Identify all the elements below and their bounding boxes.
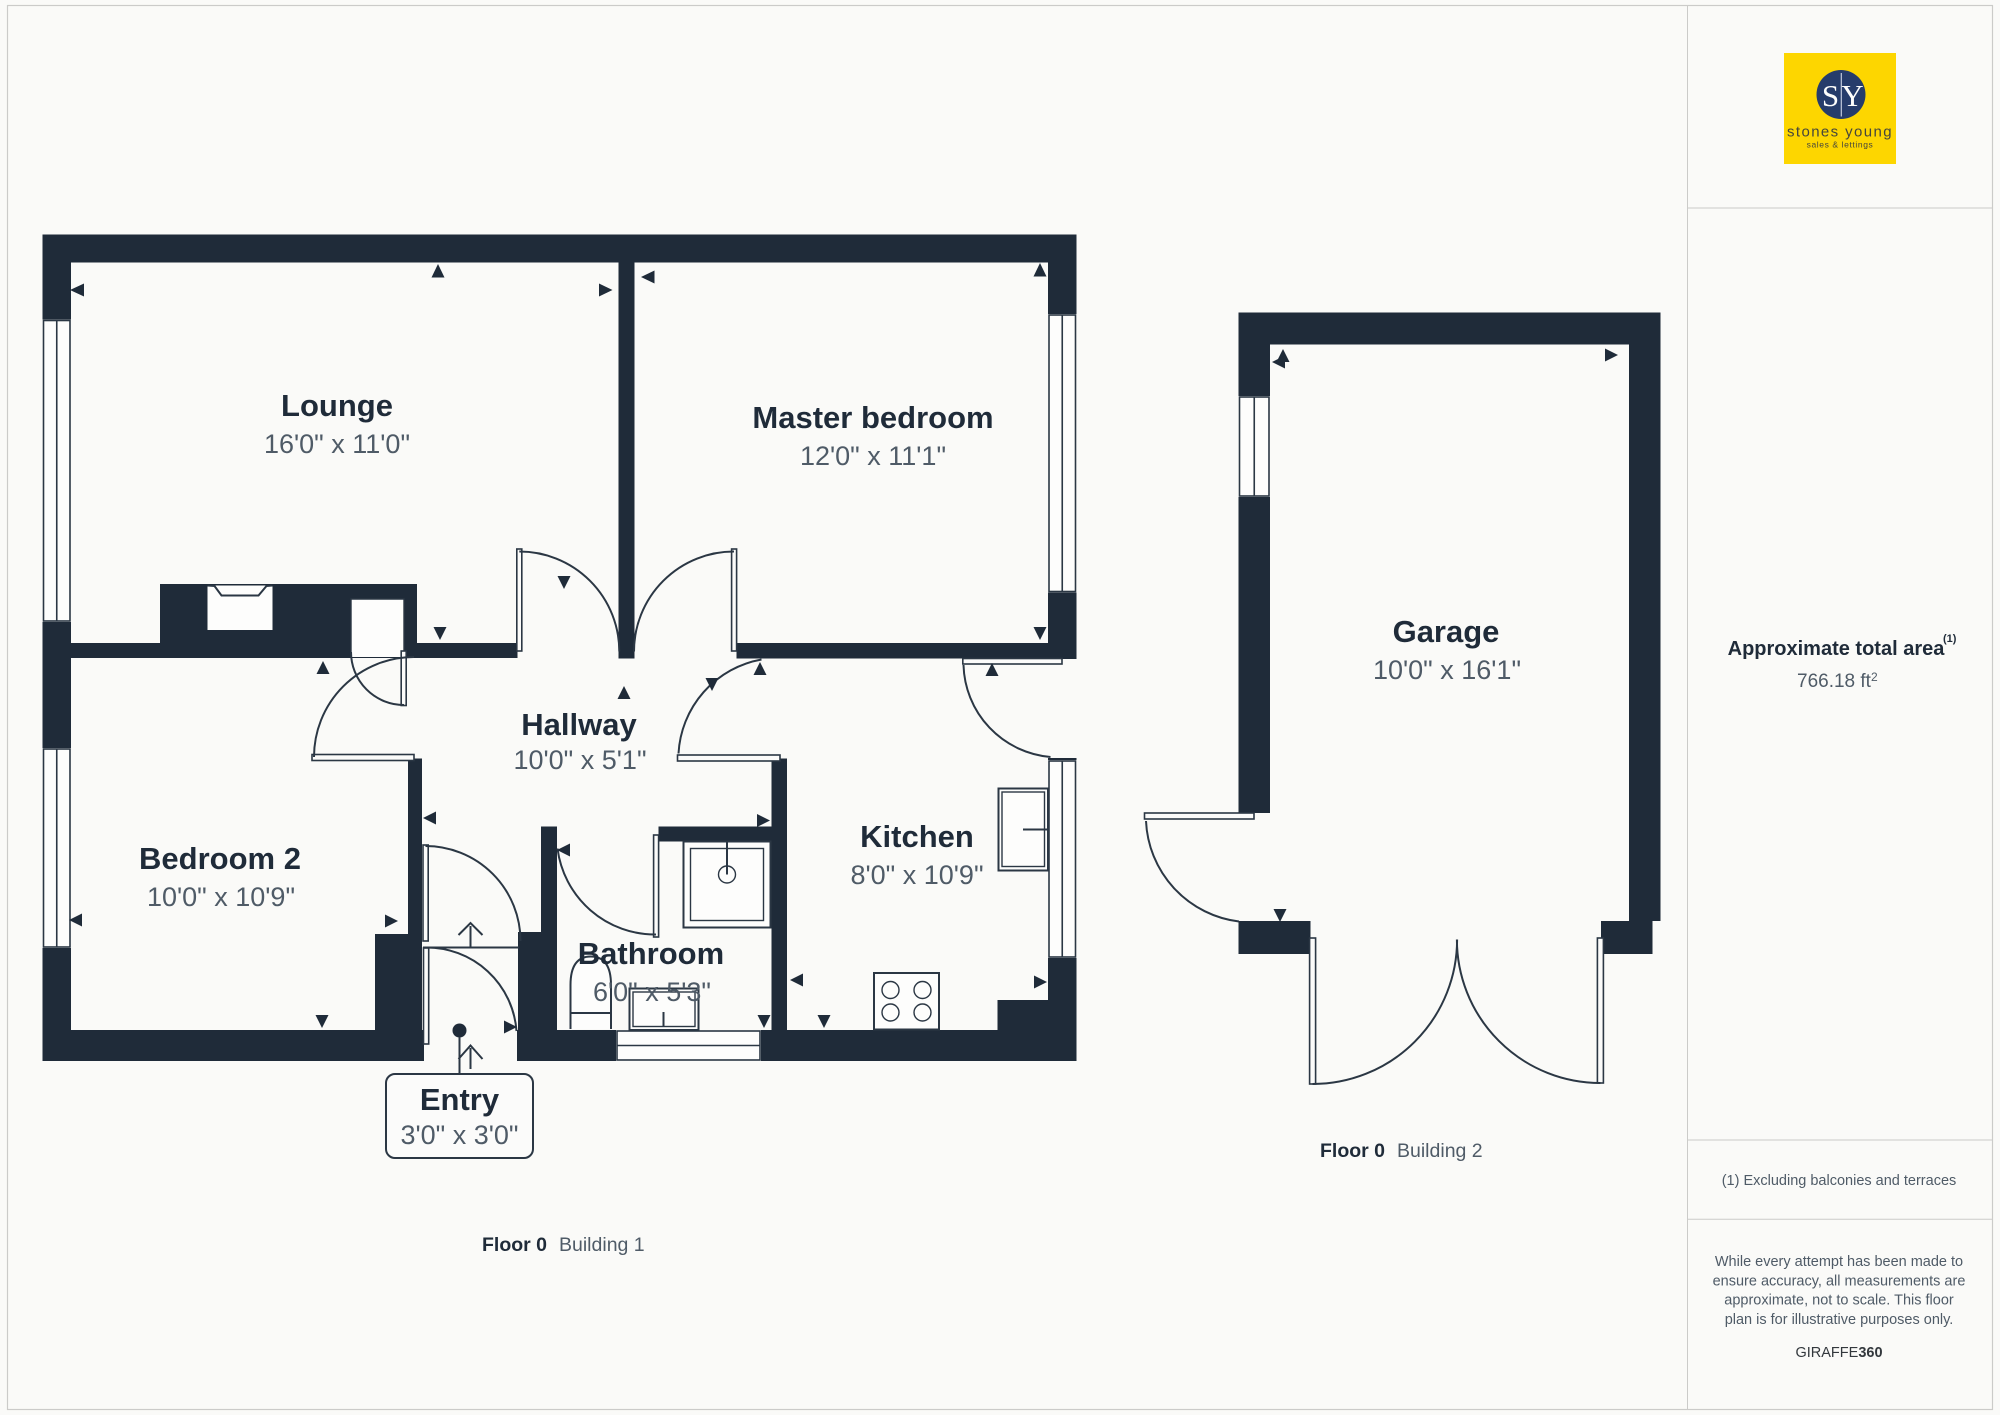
svg-text:Building 2: Building 2 [1397, 1140, 1483, 1162]
svg-text:approximate, not to scale. Thi: approximate, not to scale. This floor [1724, 1293, 1954, 1309]
svg-text:sales & lettings: sales & lettings [1807, 140, 1874, 150]
svg-text:While every attempt has been m: While every attempt has been made to [1715, 1254, 1963, 1270]
svg-text:GIRAFFE360: GIRAFFE360 [1795, 1345, 1882, 1361]
svg-text:10'0" x 10'9": 10'0" x 10'9" [147, 882, 295, 912]
svg-text:2: 2 [1871, 670, 1878, 684]
svg-text:stones young: stones young [1787, 124, 1893, 141]
svg-text:Bedroom 2: Bedroom 2 [139, 841, 301, 876]
svg-text:766.18 ft: 766.18 ft [1797, 671, 1872, 692]
svg-text:3'0" x 3'0": 3'0" x 3'0" [400, 1120, 518, 1150]
svg-text:Lounge: Lounge [281, 388, 393, 423]
svg-text:Master bedroom: Master bedroom [752, 400, 993, 435]
svg-text:16'0" x 11'0": 16'0" x 11'0" [264, 429, 410, 459]
svg-text:plan is for illustrative purpo: plan is for illustrative purposes only. [1725, 1312, 1954, 1328]
svg-text:(1): (1) [1943, 633, 1957, 645]
svg-text:10'0" x 5'1": 10'0" x 5'1" [513, 745, 646, 775]
svg-text:S: S [1822, 78, 1839, 113]
svg-text:Floor 0: Floor 0 [482, 1234, 547, 1256]
svg-text:Entry: Entry [420, 1082, 500, 1117]
svg-text:Y: Y [1841, 78, 1863, 113]
svg-text:Garage: Garage [1393, 614, 1500, 649]
svg-text:8'0" x 10'9": 8'0" x 10'9" [850, 860, 983, 890]
svg-text:Bathroom: Bathroom [578, 936, 724, 971]
svg-text:Hallway: Hallway [521, 707, 637, 742]
svg-text:10'0" x 16'1": 10'0" x 16'1" [1373, 655, 1521, 685]
svg-text:Kitchen: Kitchen [860, 819, 974, 854]
svg-text:12'0" x 11'1": 12'0" x 11'1" [800, 441, 946, 471]
svg-text:6'0" x 5'3": 6'0" x 5'3" [593, 977, 711, 1007]
svg-text:(1) Excluding balconies and te: (1) Excluding balconies and terraces [1722, 1173, 1957, 1189]
svg-text:Floor 0: Floor 0 [1320, 1140, 1385, 1162]
svg-text:Building 1: Building 1 [559, 1234, 645, 1256]
svg-text:ensure accuracy, all measureme: ensure accuracy, all measurements are [1713, 1273, 1966, 1289]
svg-text:Approximate total area: Approximate total area [1728, 638, 1946, 660]
